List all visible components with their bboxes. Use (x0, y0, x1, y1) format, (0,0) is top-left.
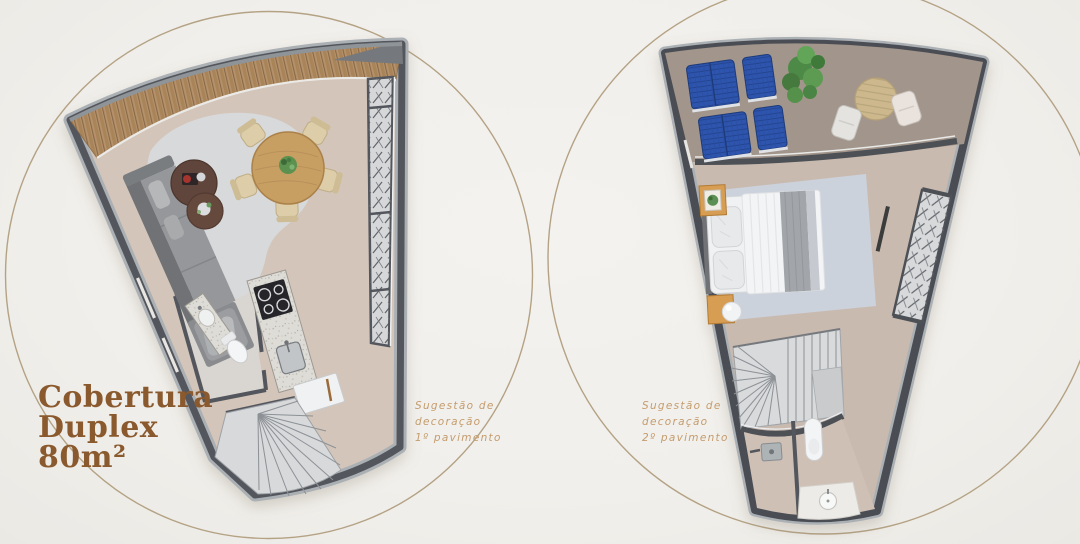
caption-first-floor-line-2: decoração (415, 414, 555, 430)
nightstand-with-art (699, 185, 727, 216)
floorplan-second-floor (665, 43, 983, 519)
vase (197, 173, 206, 182)
toilet-second-floor (804, 418, 823, 461)
title-line-3: 80m² (38, 443, 213, 473)
caption-first-floor-line-3: 1º pavimento (415, 430, 555, 446)
caption-second-floor-line-3: 2º pavimento (642, 430, 782, 446)
caption-second-floor-line-2: decoração (642, 414, 782, 430)
bathroom-door-gap (262, 352, 265, 370)
caption-second-floor: Sugestão de decoração 2º pavimento (642, 398, 782, 446)
sink-counter (798, 482, 860, 519)
title-line-2: Duplex (38, 413, 213, 443)
stair-landing (812, 367, 844, 419)
caption-second-floor-line-1: Sugestão de (642, 398, 782, 414)
page-title: Cobertura Duplex 80m² (38, 383, 213, 473)
title-line-1: Cobertura (38, 383, 213, 413)
caption-first-floor-line-1: Sugestão de (415, 398, 555, 414)
sphere-lamp (722, 302, 742, 322)
table-plant (279, 156, 297, 174)
caption-first-floor: Sugestão de decoração 1º pavimento (415, 398, 555, 446)
floorplan-marketing-panel: Cobertura Duplex 80m² Sugestão de decora… (0, 0, 1080, 544)
louver-window (368, 77, 395, 346)
red-decor-item (183, 175, 191, 183)
